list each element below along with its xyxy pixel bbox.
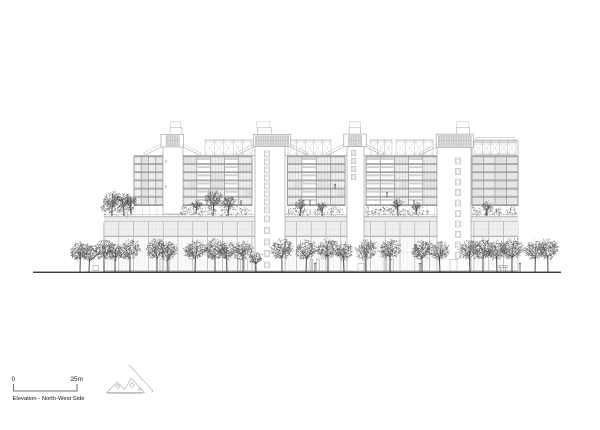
svg-text:25m: 25m [71, 376, 83, 383]
svg-text:0: 0 [12, 376, 16, 383]
